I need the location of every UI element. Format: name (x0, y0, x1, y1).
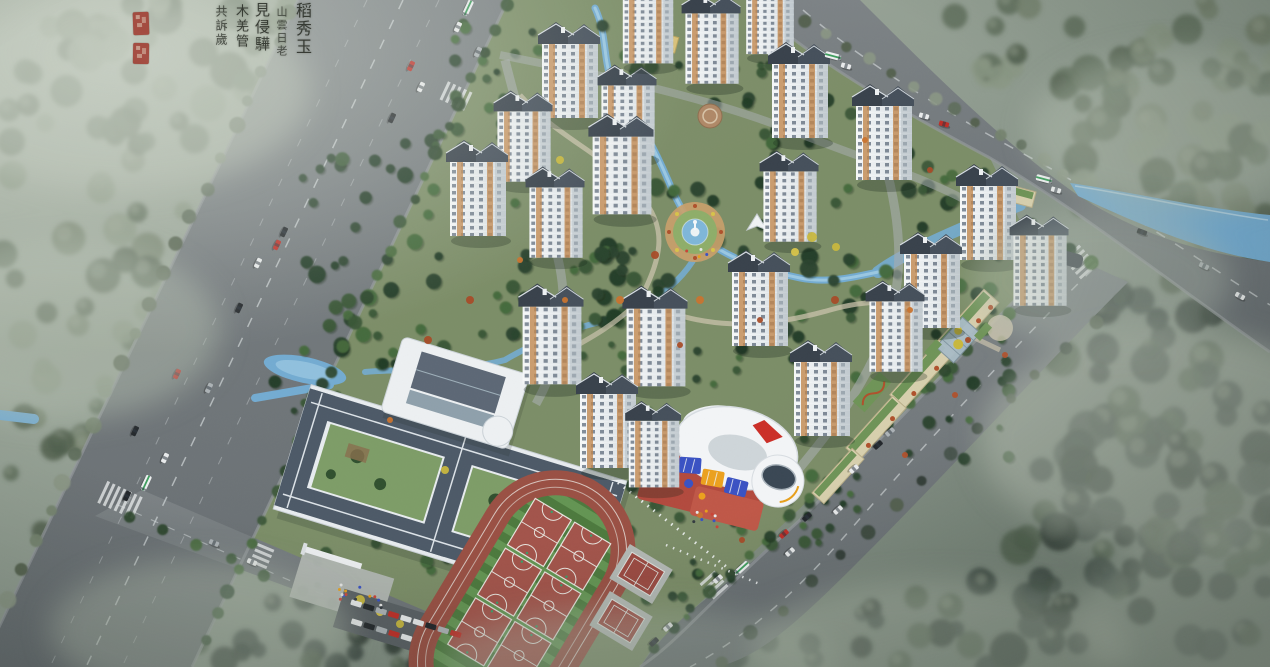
red-seal-stamp (133, 12, 150, 36)
red-seal-stamp (133, 43, 149, 64)
masterplan-rendering: 稻秀玉 山雲日老 見侵驊 木羌管 共訴歲 (0, 0, 1270, 667)
aerial-scene (0, 0, 1270, 667)
film-grain (0, 0, 1270, 667)
